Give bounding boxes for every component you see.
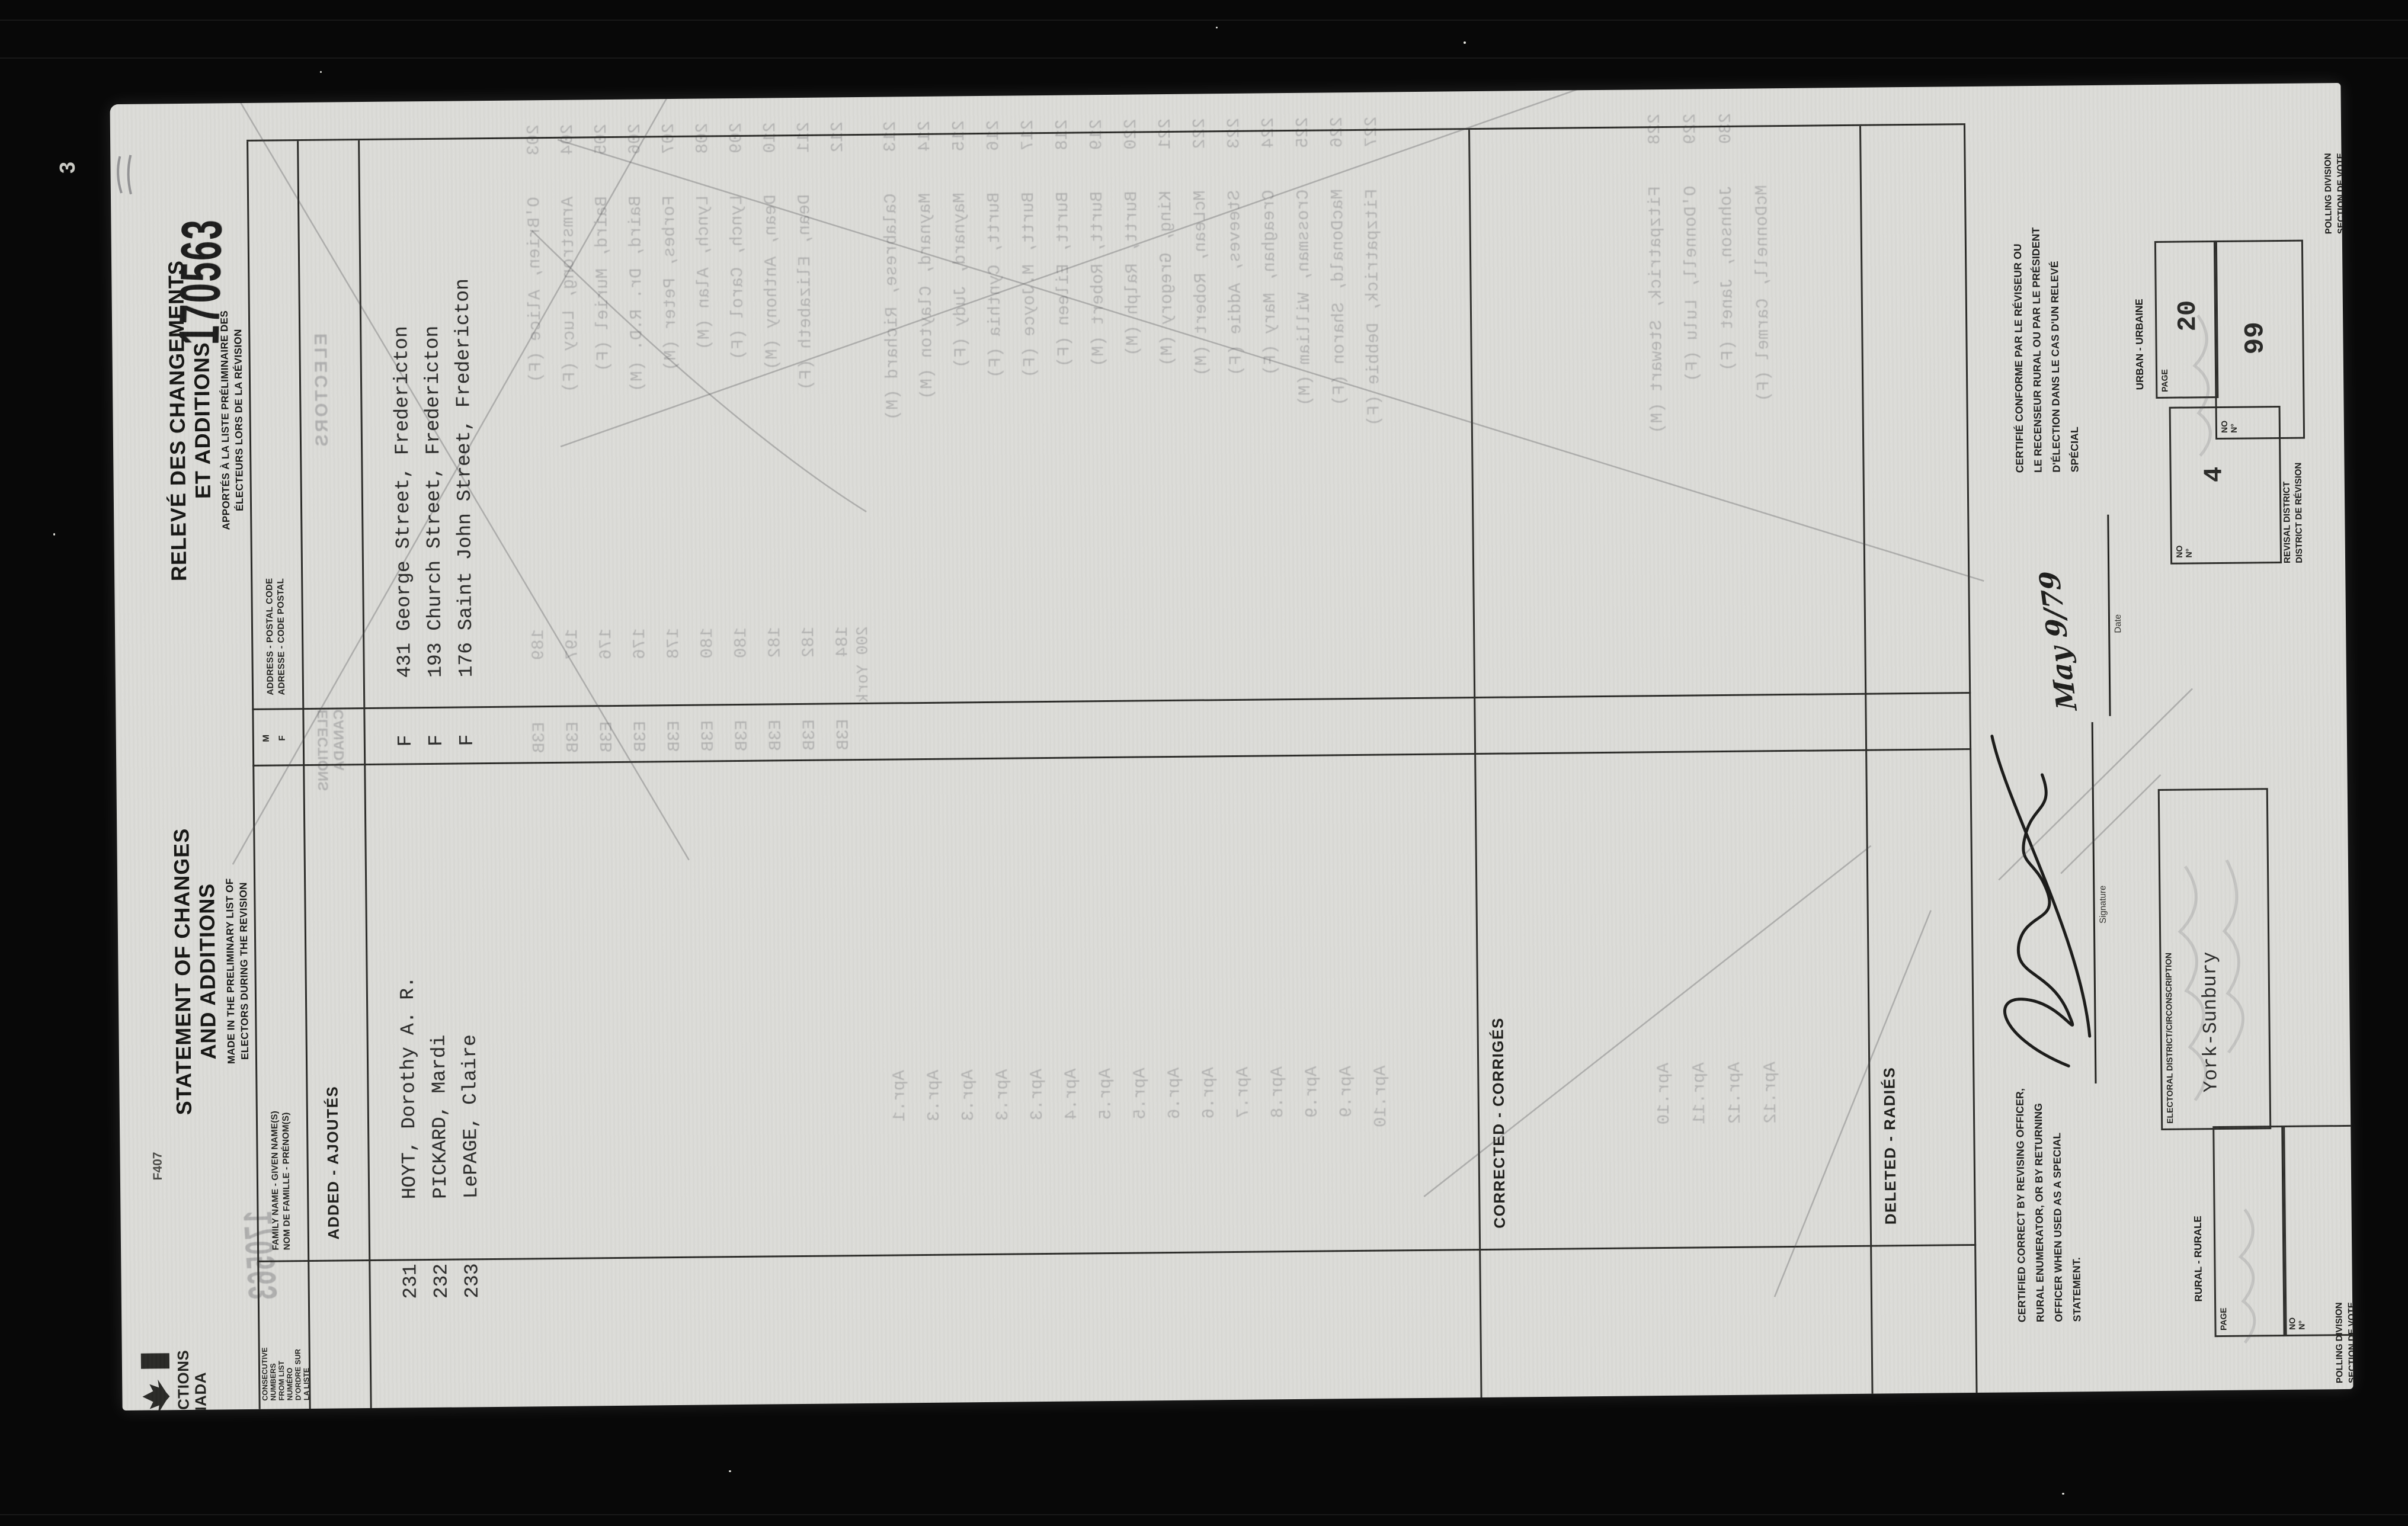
bleedthrough-row: 205 Baird, Muriel (F) 176 E3B bbox=[591, 97, 603, 1406]
film-frame-number: 3 bbox=[55, 162, 80, 174]
revisal-district-label: REVISAL DISTRICT DISTRICT DE RÉVISION bbox=[2281, 463, 2305, 563]
bleedthrough-electors-heading: ELECTORS bbox=[311, 334, 332, 449]
urban-page-box: PAGE 20 bbox=[2154, 241, 2219, 399]
rural-label: RURAL - RURALE bbox=[2192, 1216, 2205, 1301]
bleedthrough-row: 224 Creaghan, Mary (F) Apr.8 bbox=[1258, 91, 1270, 1400]
elector-number: 231 bbox=[399, 1264, 422, 1326]
elector-address: 193 Church Street, Fredericton bbox=[421, 326, 447, 678]
bleedthrough-row: 212 184 E3B bbox=[827, 94, 840, 1403]
film-streak bbox=[0, 57, 2408, 59]
section-label-deleted: DELETED - RADIÉS bbox=[1880, 1067, 1900, 1225]
elector-number: 232 bbox=[430, 1264, 453, 1326]
electoral-district-value: York-Sunbury bbox=[2199, 951, 2222, 1092]
elector-name: PICKARD, Mardi bbox=[428, 1034, 452, 1199]
electoral-district-label: ELECTORAL DISTRICT/CIRCONSCRIPTION bbox=[2163, 953, 2175, 1124]
document-page: 170563 ELECTORS ELECTIONS CANADA 200 Yor… bbox=[110, 83, 2353, 1410]
film-speck bbox=[320, 71, 322, 73]
electoral-district-box: ELECTORAL DISTRICT/CIRCONSCRIPTION York-… bbox=[2158, 788, 2272, 1130]
elector-name: HOYT, Dorothy A. R. bbox=[397, 976, 421, 1200]
bleedthrough-row: 221 King, Gregory (M) Apr.6 bbox=[1155, 91, 1167, 1400]
rural-page-box: PAGE bbox=[2212, 1126, 2287, 1337]
form-number: F407 bbox=[150, 1152, 165, 1180]
bleedthrough-row: 206 Baird, Dr. R.D. (M) 176 E3B bbox=[625, 97, 637, 1406]
bleedthrough-row: 225 Crossman, William (M) Apr.9 bbox=[1292, 90, 1305, 1399]
elections-canada-logo: ELECTIONS CANADA bbox=[138, 1299, 210, 1410]
bleedthrough-row: 226 MacDonald, Sharon (F) Apr.9 bbox=[1327, 89, 1339, 1399]
revisal-no-box: NON° 4 bbox=[2169, 406, 2282, 565]
microfilm-background: 3 bbox=[0, 0, 2408, 1526]
serial-number-stamp: 170563 bbox=[166, 219, 235, 345]
polling-division-label-left: POLLING DIVISION SECTION DE VOTE bbox=[2333, 1302, 2353, 1383]
bleedthrough-area-note: 200 York bbox=[854, 626, 873, 703]
column-header-name: FAMILY NAME - GIVEN NAME(S) NOM DE FAMIL… bbox=[265, 776, 293, 1250]
bleedthrough-row: 217 Burtt, M.Joyce (F) Apr.3 bbox=[1017, 92, 1030, 1402]
agency-wordmark: ELECTIONS CANADA bbox=[174, 1299, 210, 1410]
form-rotated-content: 170563 ELECTORS ELECTIONS CANADA 200 Yor… bbox=[110, 83, 2353, 1410]
film-speck bbox=[2062, 1493, 2064, 1495]
revisal-no-value: 4 bbox=[2200, 466, 2230, 482]
film-streak bbox=[0, 1514, 2408, 1515]
bleedthrough-row: 218 Burtt, Eileen (F) Apr.4 bbox=[1052, 92, 1064, 1402]
signature-label: Signature bbox=[2098, 886, 2108, 924]
elector-address: 176 Saint John Street, Fredericton bbox=[451, 278, 477, 678]
urban-page-label: PAGE bbox=[2160, 369, 2169, 392]
bleedthrough-row: 211 Dean, Elizabeth (F) 182 E3B bbox=[793, 95, 806, 1404]
film-speck bbox=[729, 1470, 731, 1472]
bleedthrough-row: 208 Lynch, Alan (M) 180 E3B bbox=[692, 96, 705, 1405]
bleedthrough-row: 203 O'Brien, Alice (F) 189 E3B bbox=[523, 97, 536, 1406]
bleedthrough-rows-b: 213 Calabrese, Richard (M) Apr.1 214 May… bbox=[110, 101, 123, 1410]
bleedthrough-row: 204 Armstrong, Lucy (F) 197 E3B bbox=[557, 97, 569, 1406]
bleedthrough-row: 207 Forbes, Peter (M) 178 E3B bbox=[658, 96, 671, 1405]
bleedthrough-row: 222 McLean, Robert (M) Apr.6 bbox=[1189, 91, 1202, 1400]
bleedthrough-agency-wordmark: ELECTIONS CANADA bbox=[315, 709, 347, 791]
urban-no-value: 99 bbox=[2240, 322, 2271, 355]
elector-sex: F bbox=[456, 722, 479, 758]
bleedthrough-row: 228 Fitzpatrick, Stewart (M) Apr.10 bbox=[1644, 86, 1657, 1396]
urban-page-value: 20 bbox=[2173, 300, 2204, 331]
date-label: Date bbox=[2113, 614, 2123, 633]
column-header-consecutive: CONSECUTIVE NUMBERS FROM LIST NUMÉRO D'O… bbox=[260, 1264, 310, 1401]
bleedthrough-row: 219 Burtt, Robert (M) Apr.5 bbox=[1086, 92, 1099, 1401]
section-label-added: ADDED - AJOUTÉS bbox=[323, 1086, 342, 1240]
elector-number: 233 bbox=[461, 1263, 483, 1325]
bleedthrough-row: 223 Steeves, Addie (F) Apr.7 bbox=[1224, 91, 1236, 1400]
column-header-sex: M F bbox=[260, 710, 288, 766]
polling-division-label-right: POLLING DIVISION SECTION DE VOTE bbox=[2321, 153, 2347, 234]
elector-sex: F bbox=[395, 723, 417, 758]
film-speck bbox=[53, 533, 55, 536]
bleedthrough-row: 216 Burtt, Cynthia (F) Apr.3 bbox=[983, 93, 995, 1402]
rural-page-label: PAGE bbox=[2218, 1307, 2228, 1331]
elector-sex: F bbox=[425, 723, 448, 758]
bleedthrough-row: 229 O'Donnell, Lulu (F) Apr.11 bbox=[1680, 86, 1692, 1396]
certification-text-fr: CERTIFIÉ CONFORME PAR LE RÉVISEUR OU LE … bbox=[2007, 83, 2084, 473]
film-speck bbox=[1464, 41, 1466, 44]
revisal-no-label: NON° bbox=[2175, 545, 2194, 557]
film-streak bbox=[0, 20, 2408, 21]
bleedthrough-row: 209 Lynch, Carol (F) 180 E3B bbox=[726, 95, 738, 1405]
form-subtitle-en: MADE IN THE PRELIMINARY LIST OF ELECTORS… bbox=[218, 746, 253, 1196]
canada-flag-icon bbox=[139, 1352, 172, 1410]
elector-name: LePAGE, Claire bbox=[459, 1034, 483, 1199]
bleedthrough-rows-c: 228 Fitzpatrick, Stewart (M) Apr.10 229 … bbox=[110, 101, 123, 1410]
film-speck bbox=[1216, 27, 1218, 28]
urban-label: URBAN - URBAINE bbox=[2134, 299, 2146, 390]
bleedthrough-rows-a: 203 O'Brien, Alice (F) 189 E3B 204 Armst… bbox=[110, 101, 123, 1410]
bleedthrough-row: 227 Fitzpatrick, Debbie (F) Apr.10 bbox=[1361, 89, 1373, 1399]
bleedthrough-row: 215 Maynard, Judy (F) Apr.3 bbox=[949, 94, 961, 1403]
bleedthrough-row: 210 Dean, Anthony (M) 182 E3B bbox=[760, 95, 772, 1405]
section-label-corrected: CORRECTED - CORRIGÉS bbox=[1488, 1017, 1509, 1229]
bleedthrough-row: 220 Burtt, Ralph (M) Apr.5 bbox=[1120, 92, 1133, 1401]
bleedthrough-row: 213 Calabrese, Richard (M) Apr.1 bbox=[880, 94, 892, 1403]
rural-no-label: NON° bbox=[2287, 1317, 2306, 1330]
bleedthrough-row: 230 Johnson, Janet (F) Apr.12 bbox=[1715, 86, 1728, 1395]
bleedthrough-row: McDonnell, Carmel (F) Apr.12 bbox=[1751, 86, 1763, 1395]
bleedthrough-row: 214 Maynard, Clayton (M) Apr.3 bbox=[914, 94, 927, 1403]
handwritten-signature bbox=[1977, 716, 2099, 1085]
form-title-en: STATEMENT OF CHANGES AND ADDITIONS MADE … bbox=[168, 746, 253, 1197]
elector-address: 431 George Street, Fredericton bbox=[390, 326, 416, 678]
